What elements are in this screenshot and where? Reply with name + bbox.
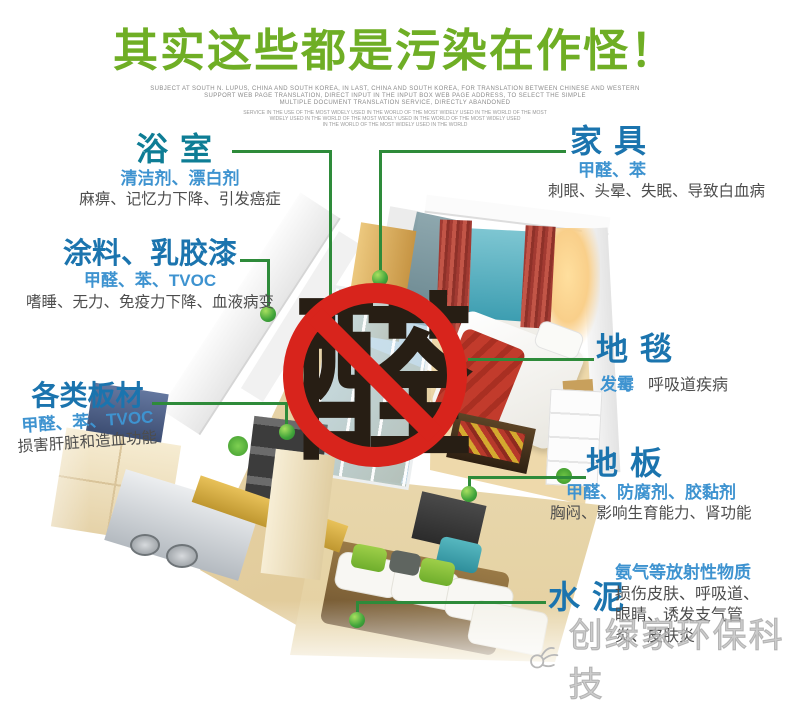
bathroom-title: 浴室 bbox=[30, 132, 330, 168]
watermark-logo-hand-icon bbox=[524, 635, 563, 679]
label-boards: 各类板材 甲醛、苯、TVOC 损害肝脏和造血功能 bbox=[0, 380, 175, 454]
cooking-pot bbox=[130, 534, 160, 556]
plant bbox=[228, 436, 248, 456]
connector-carpet bbox=[468, 358, 594, 361]
carpet-sources: 发霉 bbox=[600, 375, 634, 394]
fine-print-line: SUPPORT WEB PAGE TRANSLATION, DIRECT INP… bbox=[95, 93, 695, 100]
fine-print-line: MULTIPLE DOCUMENT TRANSLATION SERVICE, D… bbox=[95, 100, 695, 107]
fine-print-line: SUBJECT AT SOUTH N. LUPUS, CHINA AND SOU… bbox=[95, 86, 695, 93]
source-dot-floor bbox=[461, 486, 477, 502]
watermark-text: 创绿家环保科技 bbox=[569, 608, 790, 706]
curtain-right bbox=[520, 225, 555, 328]
label-floor: 地板 甲醛、防腐剂、胶黏剂 胸闷、影响生育能力、肾功能 bbox=[550, 446, 790, 525]
carpet-effects: 呼吸道疾病 bbox=[648, 377, 728, 394]
floor-title: 地板 bbox=[586, 446, 790, 482]
cement-sources: 氨气等放射性物质 bbox=[615, 562, 790, 584]
furniture-title: 家具 bbox=[570, 124, 790, 160]
connector-cement bbox=[356, 601, 546, 604]
label-bathroom: 浴室 清洁剂、漂白剂 麻痹、记忆力下降、引发癌症 bbox=[30, 132, 330, 211]
fine-print-block: SUBJECT AT SOUTH N. LUPUS, CHINA AND SOU… bbox=[95, 86, 695, 107]
poster-title: 其实这些都是污染在作怪！ bbox=[0, 14, 790, 79]
source-dot-cement bbox=[349, 612, 365, 628]
carpet-title: 地毯 bbox=[596, 332, 728, 368]
bathroom-effects: 麻痹、记忆力下降、引发癌症 bbox=[30, 190, 330, 211]
paint-sources: 甲醛、苯、TVOC bbox=[0, 270, 300, 292]
bathroom-sources: 清洁剂、漂白剂 bbox=[30, 168, 330, 190]
floor-sources: 甲醛、防腐剂、胶黏剂 bbox=[566, 482, 790, 504]
cooking-pot bbox=[166, 544, 198, 568]
floor-effects: 胸闷、影响生育能力、肾功能 bbox=[550, 504, 790, 525]
label-carpet: 地毯 发霉呼吸道疾病 bbox=[596, 332, 728, 396]
paint-effects: 嗜睡、无力、免疫力下降、血液病变 bbox=[0, 293, 300, 314]
paint-title: 涂料、乳胶漆 bbox=[0, 238, 300, 270]
cement-effects: 损伤皮肤、呼吸道、 bbox=[615, 584, 790, 605]
furniture-sources: 甲醛、苯 bbox=[578, 160, 790, 182]
watermark: 创绿家环保科技 bbox=[524, 608, 790, 706]
connector-furniture bbox=[380, 150, 566, 153]
furniture-effects: 刺眼、头晕、失眠、导致白血病 bbox=[548, 182, 790, 203]
connector-furniture bbox=[379, 150, 382, 274]
label-paint: 涂料、乳胶漆 甲醛、苯、TVOC 嗜睡、无力、免疫力下降、血液病变 bbox=[0, 238, 300, 313]
label-furniture: 家具 甲醛、苯 刺眼、头晕、失眠、导致白血病 bbox=[548, 124, 790, 203]
